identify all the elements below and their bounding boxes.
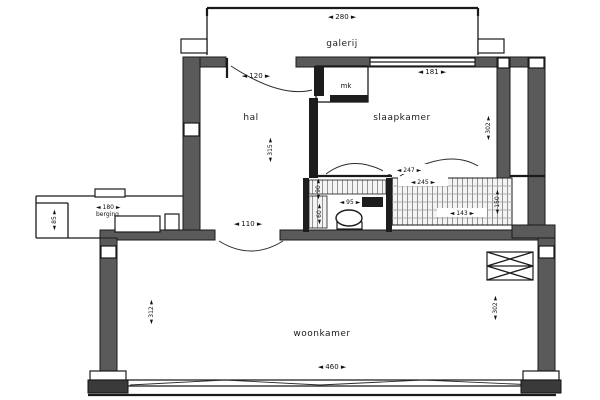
hal-label: hal [243, 113, 258, 123]
column-base-right [521, 380, 561, 393]
berging-small-box [165, 214, 179, 230]
dim-woonkamer-height-left: ◄ 312 ► [148, 299, 155, 324]
mk-left-post [314, 66, 324, 96]
column-cap-left [90, 371, 126, 380]
column-base-left [88, 380, 128, 393]
dim-balkon-height: ◄ 150 ► [494, 189, 501, 214]
left-wall-lower [100, 238, 117, 388]
dim-slaapkamer-height: ◄ 302 ► [485, 115, 492, 140]
right-wall-lower [538, 238, 555, 388]
dim-berging-width: ◄ 180 ► [96, 204, 121, 211]
wc-sink-counter [362, 197, 383, 207]
right-middle-jog [512, 225, 555, 238]
column-cap-right [523, 371, 559, 380]
dim-berging-height: ◄ 85 ► [51, 209, 58, 230]
dim-wc-height-a: ◄ 90 ► [315, 178, 322, 199]
dim-hal-door: ◄ 110 ► [234, 220, 263, 228]
galerij-label: galerij [326, 39, 357, 49]
slaapkamer-right-wall [497, 57, 510, 178]
shaft-icon [487, 252, 533, 280]
hal-slaapkamer-wall [309, 98, 318, 178]
wc-left-wall [303, 178, 309, 232]
right-lower-cap [539, 246, 554, 258]
toilet-icon [336, 210, 362, 226]
mk-label: mk [341, 82, 353, 90]
dim-mid-lower: ◄ 245 ► [411, 179, 436, 186]
dim-slaapkamer-width: ◄ 181 ► [418, 68, 447, 76]
dim-galerij-width: ◄ 280 ► [328, 13, 357, 21]
woonkamer-label: woonkamer [293, 329, 350, 339]
wc-right-wall [386, 178, 392, 232]
left-lower-cap [101, 246, 116, 258]
dim-wc-height-b: ◄ 60 ► [316, 203, 323, 224]
dim-balkon-width: ◄ 143 ► [450, 210, 475, 217]
dim-hal-height: ◄ 315 ► [267, 137, 274, 162]
dim-entry-door: ◄ 120 ► [242, 72, 271, 80]
dim-woonkamer-width: ◄ 460 ► [318, 363, 347, 371]
left-wall-upper [183, 57, 200, 238]
galerij-left-stub [181, 39, 207, 53]
berging-door [95, 189, 125, 197]
mk-bottom-wall [330, 95, 368, 102]
dim-mid-upper: ◄ 247 ► [397, 167, 422, 174]
floorplan-canvas: ◄ 280 ► galerij ◄ 120 ► [0, 0, 600, 400]
galerij-right-stub [478, 39, 504, 53]
left-wall-column-cap [184, 123, 199, 136]
right-inner-cap [498, 58, 509, 68]
dim-woonkamer-height-right: ◄ 302 ► [492, 295, 499, 320]
slaapkamer-label: slaapkamer [373, 113, 431, 123]
right-outer-cap [529, 58, 544, 68]
right-wall-upper [528, 57, 545, 238]
dim-wc-width: ◄ 95 ► [340, 199, 361, 206]
berging-inner-box [115, 216, 160, 232]
